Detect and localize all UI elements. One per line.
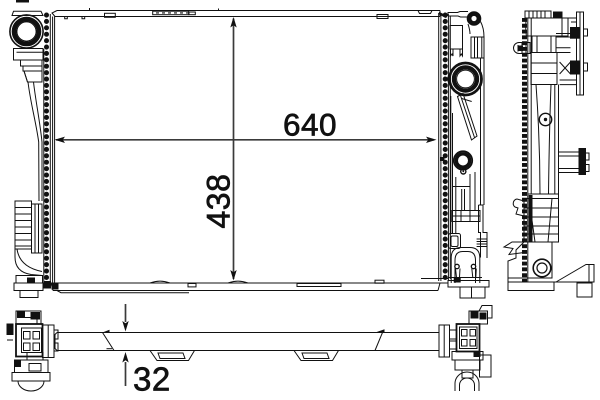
svg-text:32: 32 — [133, 361, 171, 398]
svg-text:640: 640 — [283, 107, 337, 143]
svg-text:438: 438 — [201, 174, 237, 229]
